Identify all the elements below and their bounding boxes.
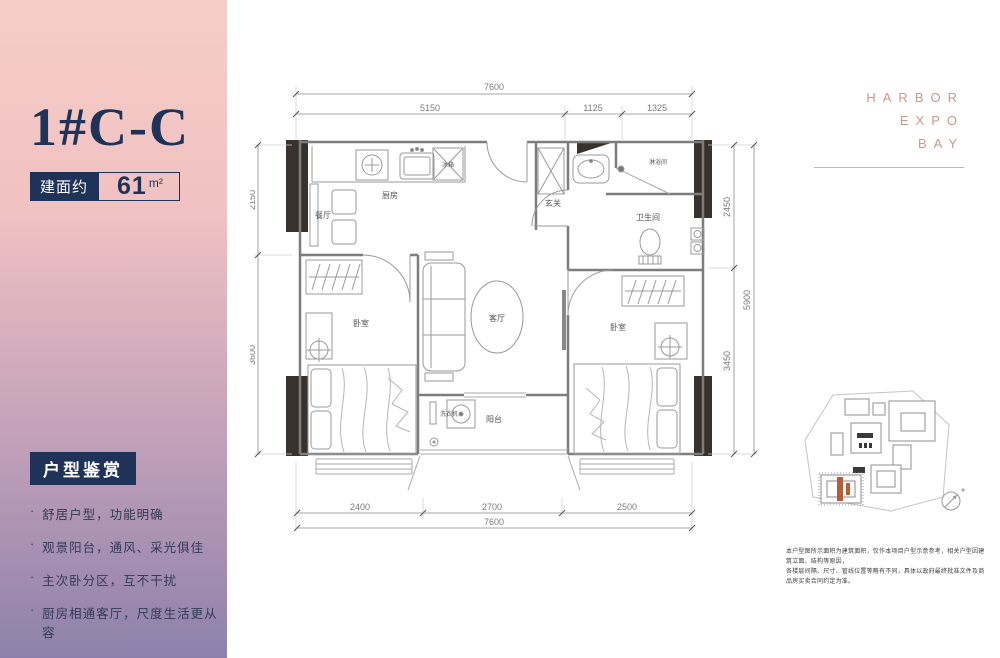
dining-chair: [332, 190, 356, 214]
shower-head: [618, 166, 624, 172]
feature-text: 观景阳台，通风、采光俱佳: [42, 537, 204, 556]
bullet-icon: ·: [30, 504, 35, 523]
label-dining: 餐厅: [315, 211, 331, 220]
pillow: [657, 368, 677, 406]
floorplan-page: 1#C-C 建面约 61 m² 户型鉴赏 ·舒居户型，功能明确 ·观景阳台，通风…: [0, 0, 1000, 658]
dim-bottom-total: 7600: [484, 517, 504, 527]
label-living: 客厅: [489, 313, 505, 323]
bullet-icon: ·: [30, 570, 35, 589]
dimension-ticks: [255, 91, 757, 531]
unit-title: 1#C-C: [30, 96, 190, 158]
dim-right-total: 5900: [742, 290, 752, 310]
dim-top-total: 7600: [484, 82, 504, 92]
highlighted-building: [819, 473, 863, 505]
label-shower: 淋浴间: [649, 158, 667, 166]
tv: [562, 290, 566, 350]
brand-line: EXPO: [814, 109, 964, 132]
sidebar: 1#C-C 建面约 61 m² 户型鉴赏 ·舒居户型，功能明确 ·观景阳台，通风…: [0, 0, 227, 658]
label-kitchen: 厨房: [382, 190, 398, 200]
label-entry: 玄关: [545, 198, 561, 208]
disclaimer: 本户型图所示面积为建筑面积，仅作本项目户型示意参考，相关户型因建筑立面、结构等原…: [786, 547, 986, 587]
compass-icon: [942, 488, 965, 510]
label-bedroom-right: 卧室: [610, 322, 626, 332]
brand-mark: HARBOR EXPO BAY: [814, 86, 964, 168]
dimension-labels: 7600 5150 1125 1325 2400 2700 2500 7600 …: [250, 82, 752, 527]
dining-chair: [332, 220, 356, 244]
dim-right-seg: 3450: [722, 351, 732, 371]
brand-line: HARBOR: [814, 86, 964, 109]
structural-columns: [286, 140, 712, 456]
feature-item: ·主次卧分区，互不干扰: [30, 570, 227, 589]
side-table: [425, 373, 453, 381]
feature-text: 厨房相通客厅，尺度生活更从容: [42, 603, 227, 641]
area-value-box: 61 m²: [98, 172, 180, 201]
entrance-door: [487, 142, 527, 182]
feature-item: ·观景阳台，通风、采光俱佳: [30, 537, 227, 556]
label-bathroom: 卫生间: [636, 212, 660, 222]
balcony-fixture: [430, 402, 436, 424]
area-unit: m²: [149, 176, 163, 190]
bedroom-right-door: [568, 270, 613, 315]
furniture: [306, 142, 704, 454]
toilet: [640, 229, 660, 255]
bullet-icon: ·: [30, 603, 35, 641]
desk-right: [655, 323, 687, 359]
floorplan: 7600 5150 1125 1325 2400 2700 2500 7600 …: [250, 70, 770, 550]
feature-item: ·舒居户型，功能明确: [30, 504, 227, 523]
area-badge: 建面约 61 m²: [30, 172, 180, 201]
pillow: [311, 369, 331, 407]
label-bedroom-left: 卧室: [353, 318, 369, 328]
dim-right-seg: 2450: [722, 197, 732, 217]
side-table: [425, 252, 453, 260]
label-balcony: 阳台: [486, 414, 502, 424]
bed-left: [308, 365, 416, 454]
dim-top-seg: 1325: [647, 103, 667, 113]
site-plan: [795, 385, 975, 533]
label-washer: 洗衣机: [440, 410, 458, 418]
sofa: [423, 263, 465, 371]
label-fridge: 冰箱: [442, 161, 454, 169]
duct-bulkhead: [577, 142, 611, 154]
floorplan-svg: 7600 5150 1125 1325 2400 2700 2500 7600 …: [250, 70, 770, 550]
disclaimer-line: 各楼层间隔、尺寸、管线位置等略有不同，具体以政府最终批准文件及商品房买卖合同约定…: [786, 567, 986, 587]
dimension-lines: [258, 94, 754, 528]
dim-bottom-seg: 2700: [482, 502, 502, 512]
brand-line: BAY: [814, 132, 964, 155]
dim-left-seg: 2150: [250, 190, 257, 210]
dim-bottom-seg: 2500: [617, 502, 637, 512]
area-value: 61: [117, 172, 147, 201]
bathroom-door: [532, 190, 568, 226]
site-plan-svg: [795, 385, 975, 533]
bedroom-left-door: [363, 255, 410, 302]
dim-top-seg: 1125: [583, 103, 602, 113]
section-title: 户型鉴赏: [30, 452, 136, 485]
dim-bottom-seg: 2400: [350, 502, 370, 512]
dim-top-seg: 5150: [420, 103, 440, 113]
feature-text: 舒居户型，功能明确: [42, 504, 164, 523]
area-label: 建面约: [30, 172, 98, 201]
pillow: [311, 411, 331, 449]
dim-left-seg: 3600: [250, 345, 257, 365]
feature-item: ·厨房相通客厅，尺度生活更从容: [30, 603, 227, 641]
feature-text: 主次卧分区，互不干扰: [42, 570, 177, 589]
extension-lines: [254, 86, 758, 532]
disclaimer-line: 本户型图所示面积为建筑面积，仅作本项目户型示意参考，相关户型因建筑立面、结构等原…: [786, 547, 986, 567]
bullet-icon: ·: [30, 537, 35, 556]
feature-list: ·舒居户型，功能明确 ·观景阳台，通风、采光俱佳 ·主次卧分区，互不干扰 ·厨房…: [30, 504, 227, 655]
walls: [299, 140, 703, 454]
room-labels: 餐厅 厨房 冰箱 玄关 淋浴间 卫生间 客厅 卧室 卧室 阳台 洗衣机: [315, 158, 667, 424]
pillow: [657, 410, 677, 448]
